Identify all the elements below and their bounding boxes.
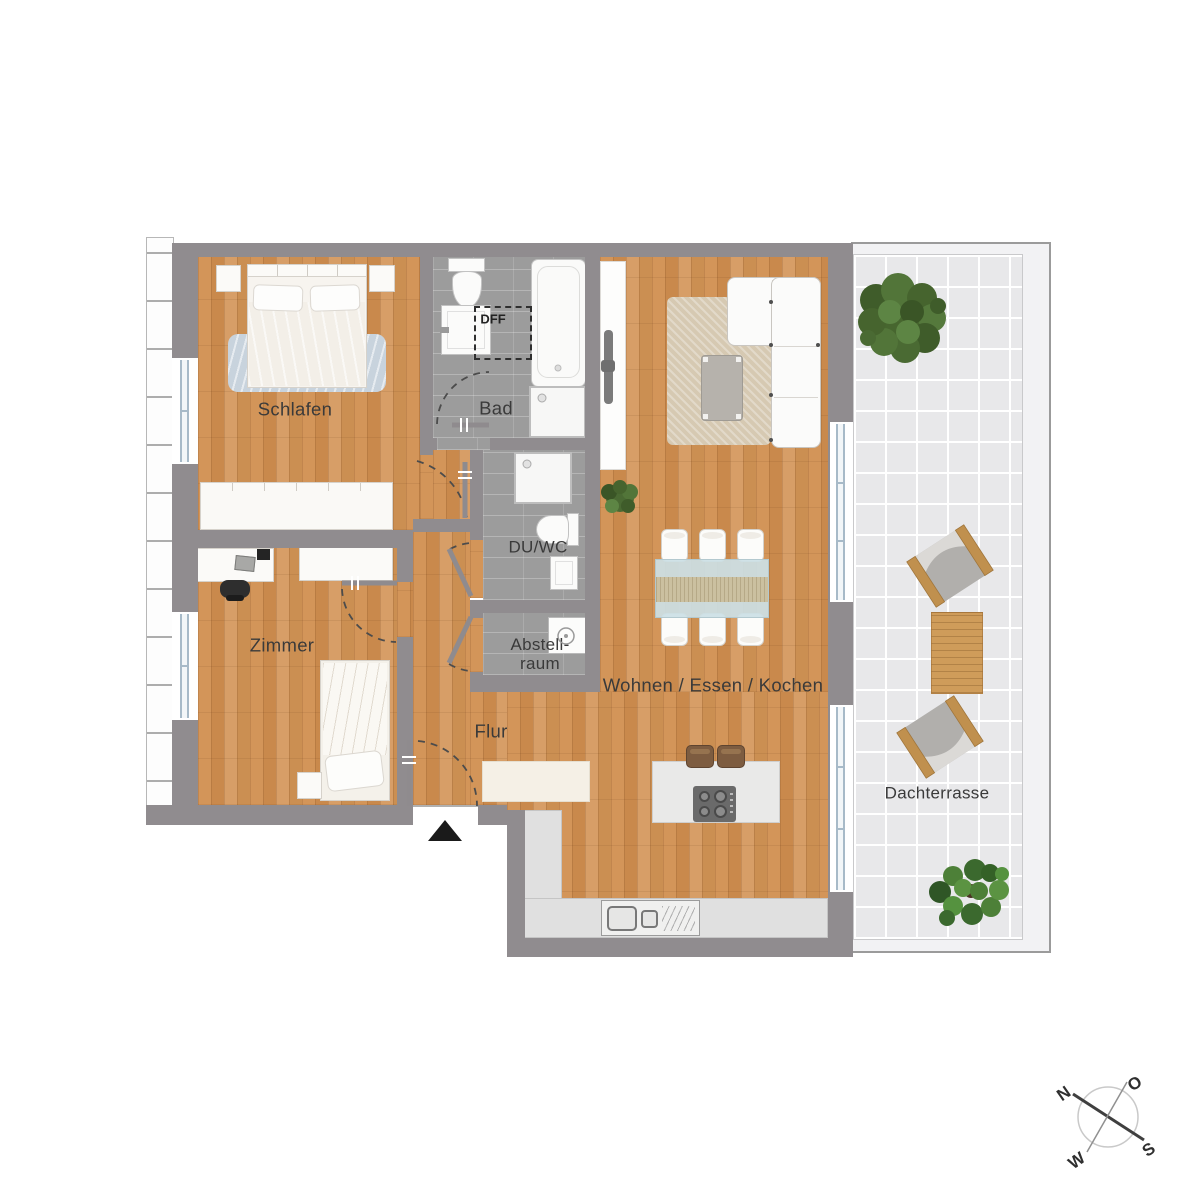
abstellraum-line1: Abstell- [510,635,569,654]
sink-basin [555,561,573,585]
wall-duwc-abst [470,600,600,613]
compass-w: W [1065,1148,1090,1173]
compass-s: S [1139,1139,1159,1161]
room-label-dachterrasse: Dachterrasse [885,783,990,802]
entrance-threshold [413,805,478,807]
terrace-wood-mat [931,612,983,694]
wall-zimmer-east-b [397,637,413,805]
burner [699,791,710,802]
desk-box [257,549,270,560]
compass-o: O [1124,1072,1146,1095]
cooktop [693,786,736,822]
flur-sideboard [482,761,590,802]
floor-flur [413,530,470,805]
table-leg [703,414,708,419]
sink-drainboard [662,906,695,931]
label-dff: DFF [480,312,505,327]
dining-chair [661,529,688,562]
table-leg [736,357,741,362]
burner [714,790,727,803]
compass-n: N [1053,1082,1074,1105]
entrance-arrow-icon [428,820,462,841]
shower-duwc [514,452,572,504]
coffee-table [701,355,743,421]
table-leg [736,414,741,419]
table-leg [703,357,708,362]
room-label-schlafen: Schlafen [258,400,332,421]
window-muntin [836,766,845,768]
nightstand [369,265,395,292]
dining-chair [699,529,726,562]
pillow [310,284,361,312]
wall-bottom-left2 [478,805,507,825]
wall-abst-west-a [470,613,483,618]
faucet-icon [440,327,449,333]
room-label-abstellraum: Abstell- raum [510,635,569,673]
sofa-divider [774,397,818,398]
table-runner [656,577,768,602]
burner [699,806,710,817]
door-gap-duwc [470,540,483,598]
room-label-wohnen: Wohnen / Essen / Kochen [603,676,823,697]
shower-bad [529,386,586,438]
sink-basin-large [607,906,637,931]
window-muntin [180,410,189,412]
room-label-duwc: DU/WC [508,537,567,556]
room-label-zimmer: Zimmer [250,636,314,657]
dining-table [655,559,769,618]
wall-corridor-bottom [413,519,470,532]
window-muntin [180,665,189,667]
window-muntin [836,828,845,830]
bar-stool [717,745,745,768]
pillow [324,750,385,793]
toilet-tank [448,258,485,272]
bar-stool [686,745,714,768]
window-glass [836,424,845,600]
sofa-body [771,277,821,448]
pillow [253,284,304,312]
wall-bad-bottom-a [420,438,437,450]
bathtub [531,259,586,387]
sofa-divider [774,346,818,347]
wall-bad-east [585,257,600,692]
wall-bottom-left [146,805,413,825]
compass-icon: N O S W [1053,1072,1159,1173]
wall-kitchen-west [507,810,525,957]
kitchen-sink [601,900,700,936]
wardrobe-dividers [201,483,392,491]
abstellraum-line2: raum [510,654,569,673]
wall-top [172,243,853,257]
door-gap-schlafen [420,455,433,519]
window-glass [836,707,845,890]
duwc-sink [550,556,578,590]
tv-icon-center [601,360,615,372]
wall-abst-bottom [470,675,600,692]
door-gap-zimmer [397,582,413,637]
terrace-tile-floor [853,254,1023,940]
roof-hatch-strip [146,237,174,807]
window-muntin [836,482,845,484]
window-muntin [836,540,845,542]
door-gap-bad [437,438,490,450]
kitchen-counter-vertical [524,810,562,899]
nightstand [216,265,241,292]
dining-chair [737,529,764,562]
wall-zimmer-top [172,530,397,548]
nightstand [297,772,322,799]
bed-headboard [247,264,367,277]
burner [714,805,727,818]
floor-corridor [433,450,470,530]
bed-duvet [249,302,365,386]
room-label-bad: Bad [479,399,513,420]
door-gap-abstellraum [470,618,483,672]
desk-chair-back [226,595,244,601]
wall-duwc-west [470,450,483,540]
single-bed-duvet [323,663,387,755]
wall-bottom-kitchen [507,938,853,957]
bathtub-inner [537,266,580,378]
floor-plan-canvas: Schlafen Bad DFF DU/WC Abstell- raum Zim… [0,0,1200,1200]
cooktop-controls [730,793,733,815]
wardrobe [200,482,393,530]
wall-bad-bottom-b [490,438,600,450]
sink-basin-small [641,910,658,928]
wall-zimmer-east-a [397,530,413,582]
wall-schlafen-bad [420,257,433,455]
room-label-flur: Flur [474,722,507,743]
laptop [234,555,255,572]
